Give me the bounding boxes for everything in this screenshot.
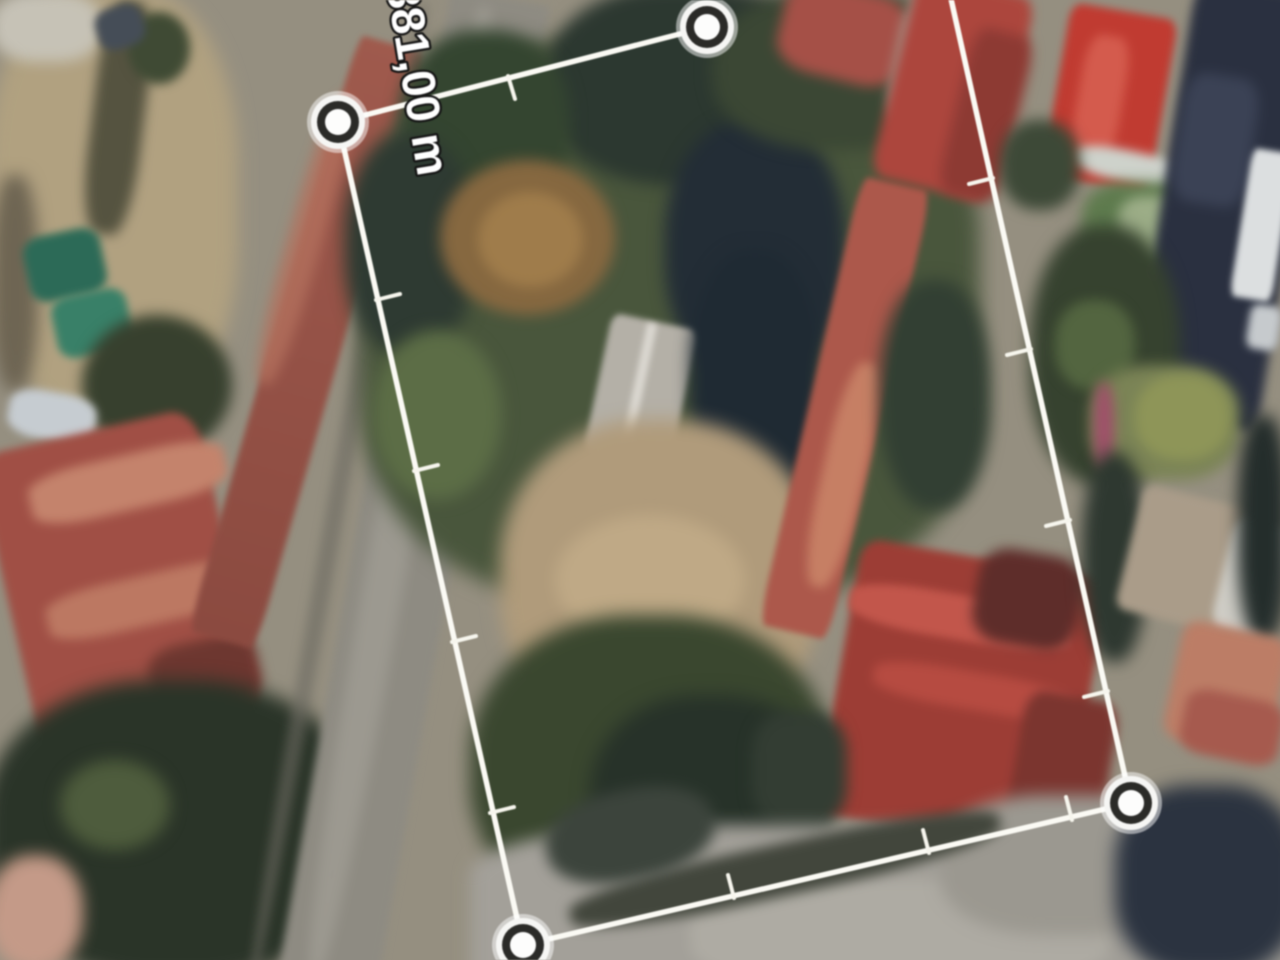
vertex-core: [694, 14, 720, 40]
vertex-handle[interactable]: [307, 91, 369, 153]
measurement-path: [338, 0, 1131, 945]
vertex-handle[interactable]: [1100, 772, 1162, 834]
vertex-core: [510, 932, 536, 958]
measure-edge-bottom[interactable]: [523, 803, 1131, 945]
map-window: 381,00 m: [0, 0, 1280, 960]
measure-edge-left[interactable]: [338, 122, 523, 945]
vertex-core: [325, 109, 351, 135]
vertex-handle[interactable]: [492, 914, 554, 960]
vertex-handle[interactable]: [676, 0, 738, 58]
distance-label: 381,00 m: [376, 0, 460, 179]
vertex-core: [1118, 790, 1144, 816]
measurement-overlay: 381,00 m: [0, 0, 1280, 960]
measure-edge-right[interactable]: [949, 0, 1131, 803]
